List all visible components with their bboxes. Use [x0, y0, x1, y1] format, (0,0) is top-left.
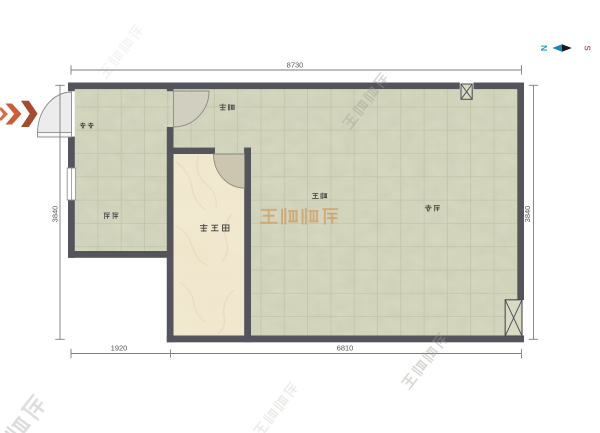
- svg-text:1920: 1920: [111, 344, 128, 353]
- svg-text:S: S: [583, 45, 592, 51]
- svg-text:8730: 8730: [287, 61, 304, 70]
- svg-text:3840: 3840: [51, 206, 60, 223]
- svg-text:3840: 3840: [523, 206, 532, 223]
- svg-text:N: N: [539, 45, 549, 51]
- svg-text:6810: 6810: [337, 344, 354, 353]
